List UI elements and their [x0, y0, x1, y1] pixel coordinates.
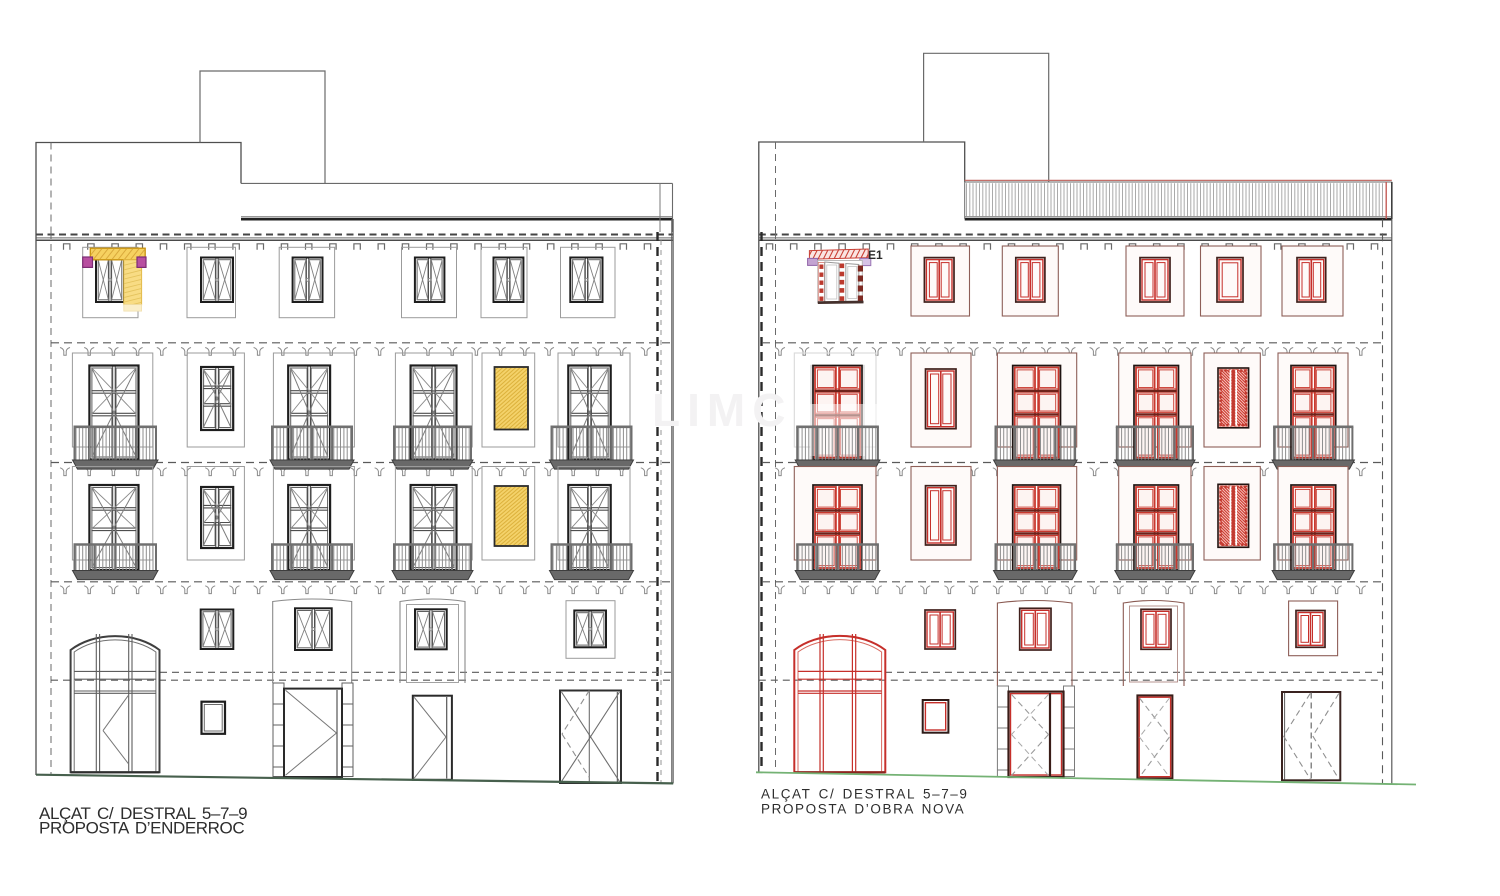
- svg-text:PROPOSTA D’OBRA NOVA: PROPOSTA D’OBRA NOVA: [761, 802, 965, 817]
- svg-text:LIMC: LIMC: [652, 384, 792, 436]
- svg-text:E1: E1: [868, 248, 883, 262]
- svg-text:ALÇAT C/ DESTRAL 5–7–9: ALÇAT C/ DESTRAL 5–7–9: [761, 787, 969, 802]
- svg-text:PROPOSTA D’ENDERROC: PROPOSTA D’ENDERROC: [39, 819, 244, 838]
